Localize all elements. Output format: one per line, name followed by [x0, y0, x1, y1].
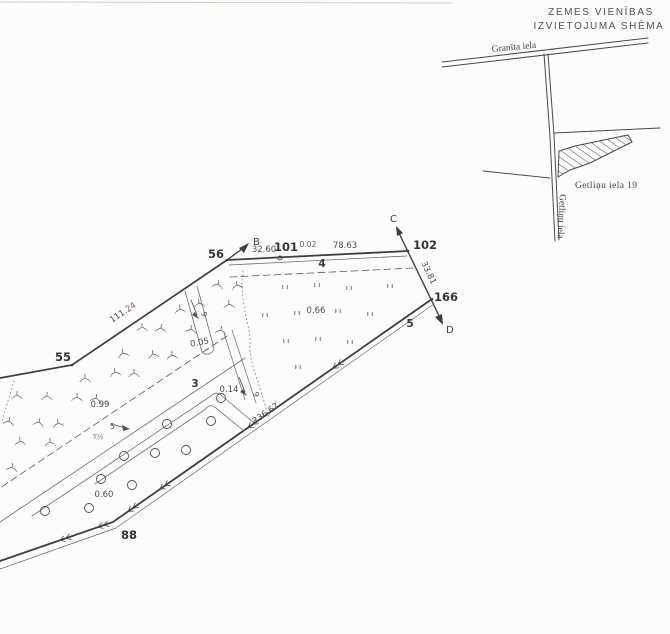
parcel-number-5: 5 [406, 318, 413, 330]
inset-map [442, 38, 660, 241]
side-road-left [483, 171, 550, 178]
boundary-166-88 [0, 299, 432, 561]
meadow-symbol [315, 283, 319, 287]
meadow-symbol [388, 284, 392, 288]
swamp-symbol [6, 462, 18, 471]
granita-street-line-upper [442, 38, 648, 62]
scheme-title-line2: IZVIETOJUMA SHĒMA [534, 20, 665, 32]
tree-circle [97, 475, 106, 484]
swamp-symbol [174, 304, 186, 313]
parcel-boundaries [0, 229, 441, 569]
terrain-symbols [3, 279, 392, 543]
point-label-56: 56 [208, 247, 224, 261]
meadow-symbol [368, 312, 372, 316]
tree-circle [41, 507, 50, 516]
swamp-symbol [136, 323, 147, 331]
getlinu-street-line-left [544, 54, 555, 241]
distance-101-102: 78.63 [333, 241, 357, 251]
point-label-88: 88 [121, 528, 137, 542]
swamp-symbol [223, 300, 234, 308]
tree-circle [128, 481, 137, 490]
meadow-symbol [284, 339, 288, 343]
swamp-symbol [14, 437, 25, 445]
survey-drawing: ZEMES VIENĪBAS IZVIETOJUMA SHĒMA Granīta… [0, 0, 670, 634]
arrowhead-c [396, 226, 403, 236]
scan-edge-line [0, 2, 452, 3]
direction-label-c: C [390, 214, 397, 225]
point-marker-55 [71, 364, 74, 367]
swamp-symbol [231, 280, 243, 289]
swamp-symbol [212, 279, 224, 289]
swamp-symbol [3, 416, 15, 426]
arrowhead-flow-1 [192, 312, 199, 319]
subject-parcel-hatched [558, 135, 632, 177]
point-label-166: 166 [434, 290, 458, 304]
tree-circle [207, 417, 216, 426]
point-marker-56 [226, 259, 229, 262]
ditch-label-flow3: 5 [110, 422, 115, 431]
point-label-55: 55 [55, 350, 71, 364]
area-meadow: 0.66 [307, 306, 326, 316]
direction-label-d: D [446, 325, 454, 336]
meadow-symbol [296, 365, 300, 369]
distance-56-101: 32.60 [252, 245, 276, 255]
boundary-tick [59, 534, 71, 543]
boundary-tick [97, 521, 109, 530]
swamp-symbol [52, 418, 64, 427]
cadastral-scheme-page: ZEMES VIENĪBAS IZVIETOJUMA SHĒMA Granīta… [0, 0, 670, 634]
swamp-symbol [147, 349, 159, 359]
swamp-symbol [193, 299, 205, 307]
distance-small: 0.02 [300, 240, 317, 249]
dotted-stub-55 [2, 381, 14, 421]
ditch-label-flow1: 9 [199, 311, 209, 319]
area-swamp: 0.99 [91, 400, 110, 410]
swamp-symbol [109, 367, 121, 376]
swamp-symbol [117, 348, 129, 358]
tree-circle [151, 449, 160, 458]
point-marker-166 [431, 298, 434, 301]
swamp-symbol [155, 323, 167, 332]
swamp-symbol [11, 391, 22, 399]
area-ditch-strip: 0.05 [189, 336, 209, 349]
internal-line-strip3 [0, 358, 245, 522]
meadow-symbol [263, 313, 267, 317]
arrowhead-b [239, 243, 249, 253]
side-road-right [554, 128, 660, 133]
swamp-symbol [215, 325, 227, 334]
meadow-symbol [283, 285, 287, 289]
swamp-symbol [41, 392, 52, 400]
distance-102-166: 33.81 [418, 260, 438, 286]
granita-street-label: Granīta iela [491, 41, 537, 55]
area-small-strip: 0.14 [220, 385, 239, 395]
distance-55-56: 111.24 [108, 301, 138, 326]
getlinu-street-label: Getliņu iela [555, 194, 567, 240]
meadow-symbol [348, 340, 352, 344]
culvert-symbol-label: T½ [92, 433, 103, 441]
area-orchard: 0.60 [95, 490, 114, 500]
swamp-symbol [33, 417, 45, 427]
parcel-number-3: 3 [191, 378, 198, 390]
swamp-symbol [71, 393, 82, 401]
meadow-symbol [316, 337, 320, 341]
swamp-symbol [79, 374, 90, 382]
point-label-101: 101 [274, 240, 298, 254]
tree-circle [85, 504, 94, 513]
swamp-symbol [44, 438, 55, 446]
meadow-symbol [336, 309, 340, 313]
tree-circle [163, 420, 172, 429]
tree-circle [182, 446, 191, 455]
point-marker-102 [407, 250, 410, 253]
meadow-symbol [295, 311, 299, 315]
swamp-symbol [166, 351, 177, 359]
arrowhead-d [435, 314, 443, 325]
ditch-flow-arrow-1 [191, 300, 197, 315]
parcel-number-4: 4 [318, 258, 325, 270]
arrowhead-flow-3 [122, 425, 130, 431]
meadow-symbol [347, 286, 351, 290]
swamp-symbol [129, 369, 140, 377]
subject-parcel-address-label: Getliņu iela 19 [575, 181, 637, 191]
point-label-102: 102 [413, 238, 437, 252]
orchard-enclosure-inner [95, 406, 244, 484]
scheme-title-line1: ZEMES VIENĪBAS [548, 6, 654, 18]
